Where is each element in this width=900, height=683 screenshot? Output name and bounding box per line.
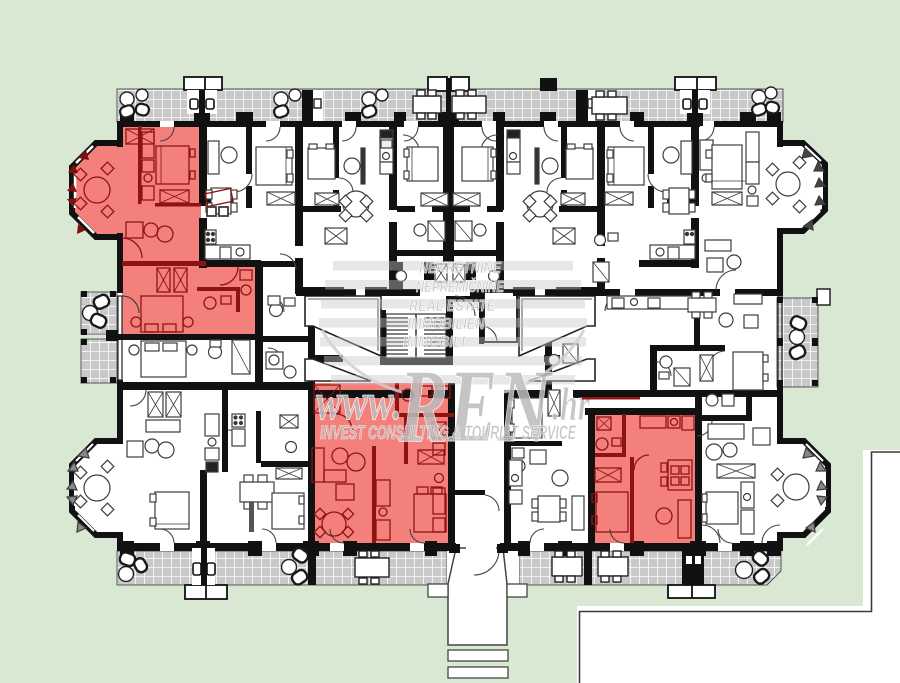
svg-text:IMMOBILIEN: IMMOBILIEN bbox=[408, 316, 485, 333]
svg-text:REAL ESTATE: REAL ESTATE bbox=[409, 298, 496, 315]
svg-text:NEPREMIČNINE: NEPREMIČNINE bbox=[416, 277, 505, 296]
svg-text:NEKRETNINE: NEKRETNINE bbox=[419, 260, 502, 277]
svg-text:REN: REN bbox=[398, 347, 553, 464]
svg-text:INVEST CONSULTING & TOURIST SE: INVEST CONSULTING & TOURIST SERVICE bbox=[320, 423, 577, 444]
